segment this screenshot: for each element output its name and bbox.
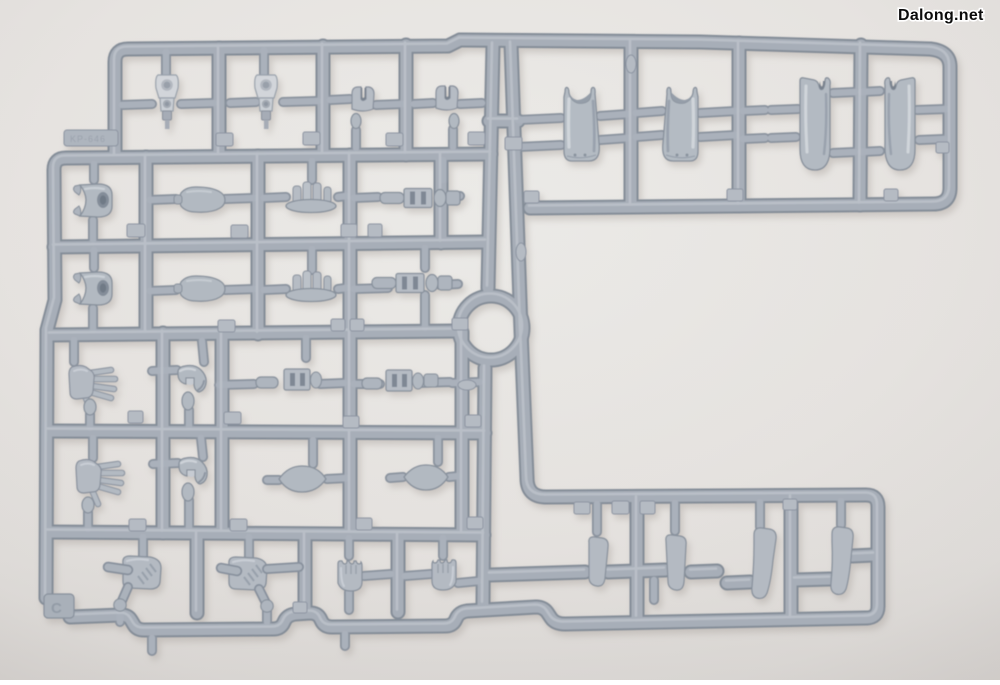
svg-text:C: C: [51, 600, 62, 617]
svg-text:Dalong.net: Dalong.net: [898, 7, 984, 24]
svg-text:KP-646: KP-646: [70, 134, 106, 144]
